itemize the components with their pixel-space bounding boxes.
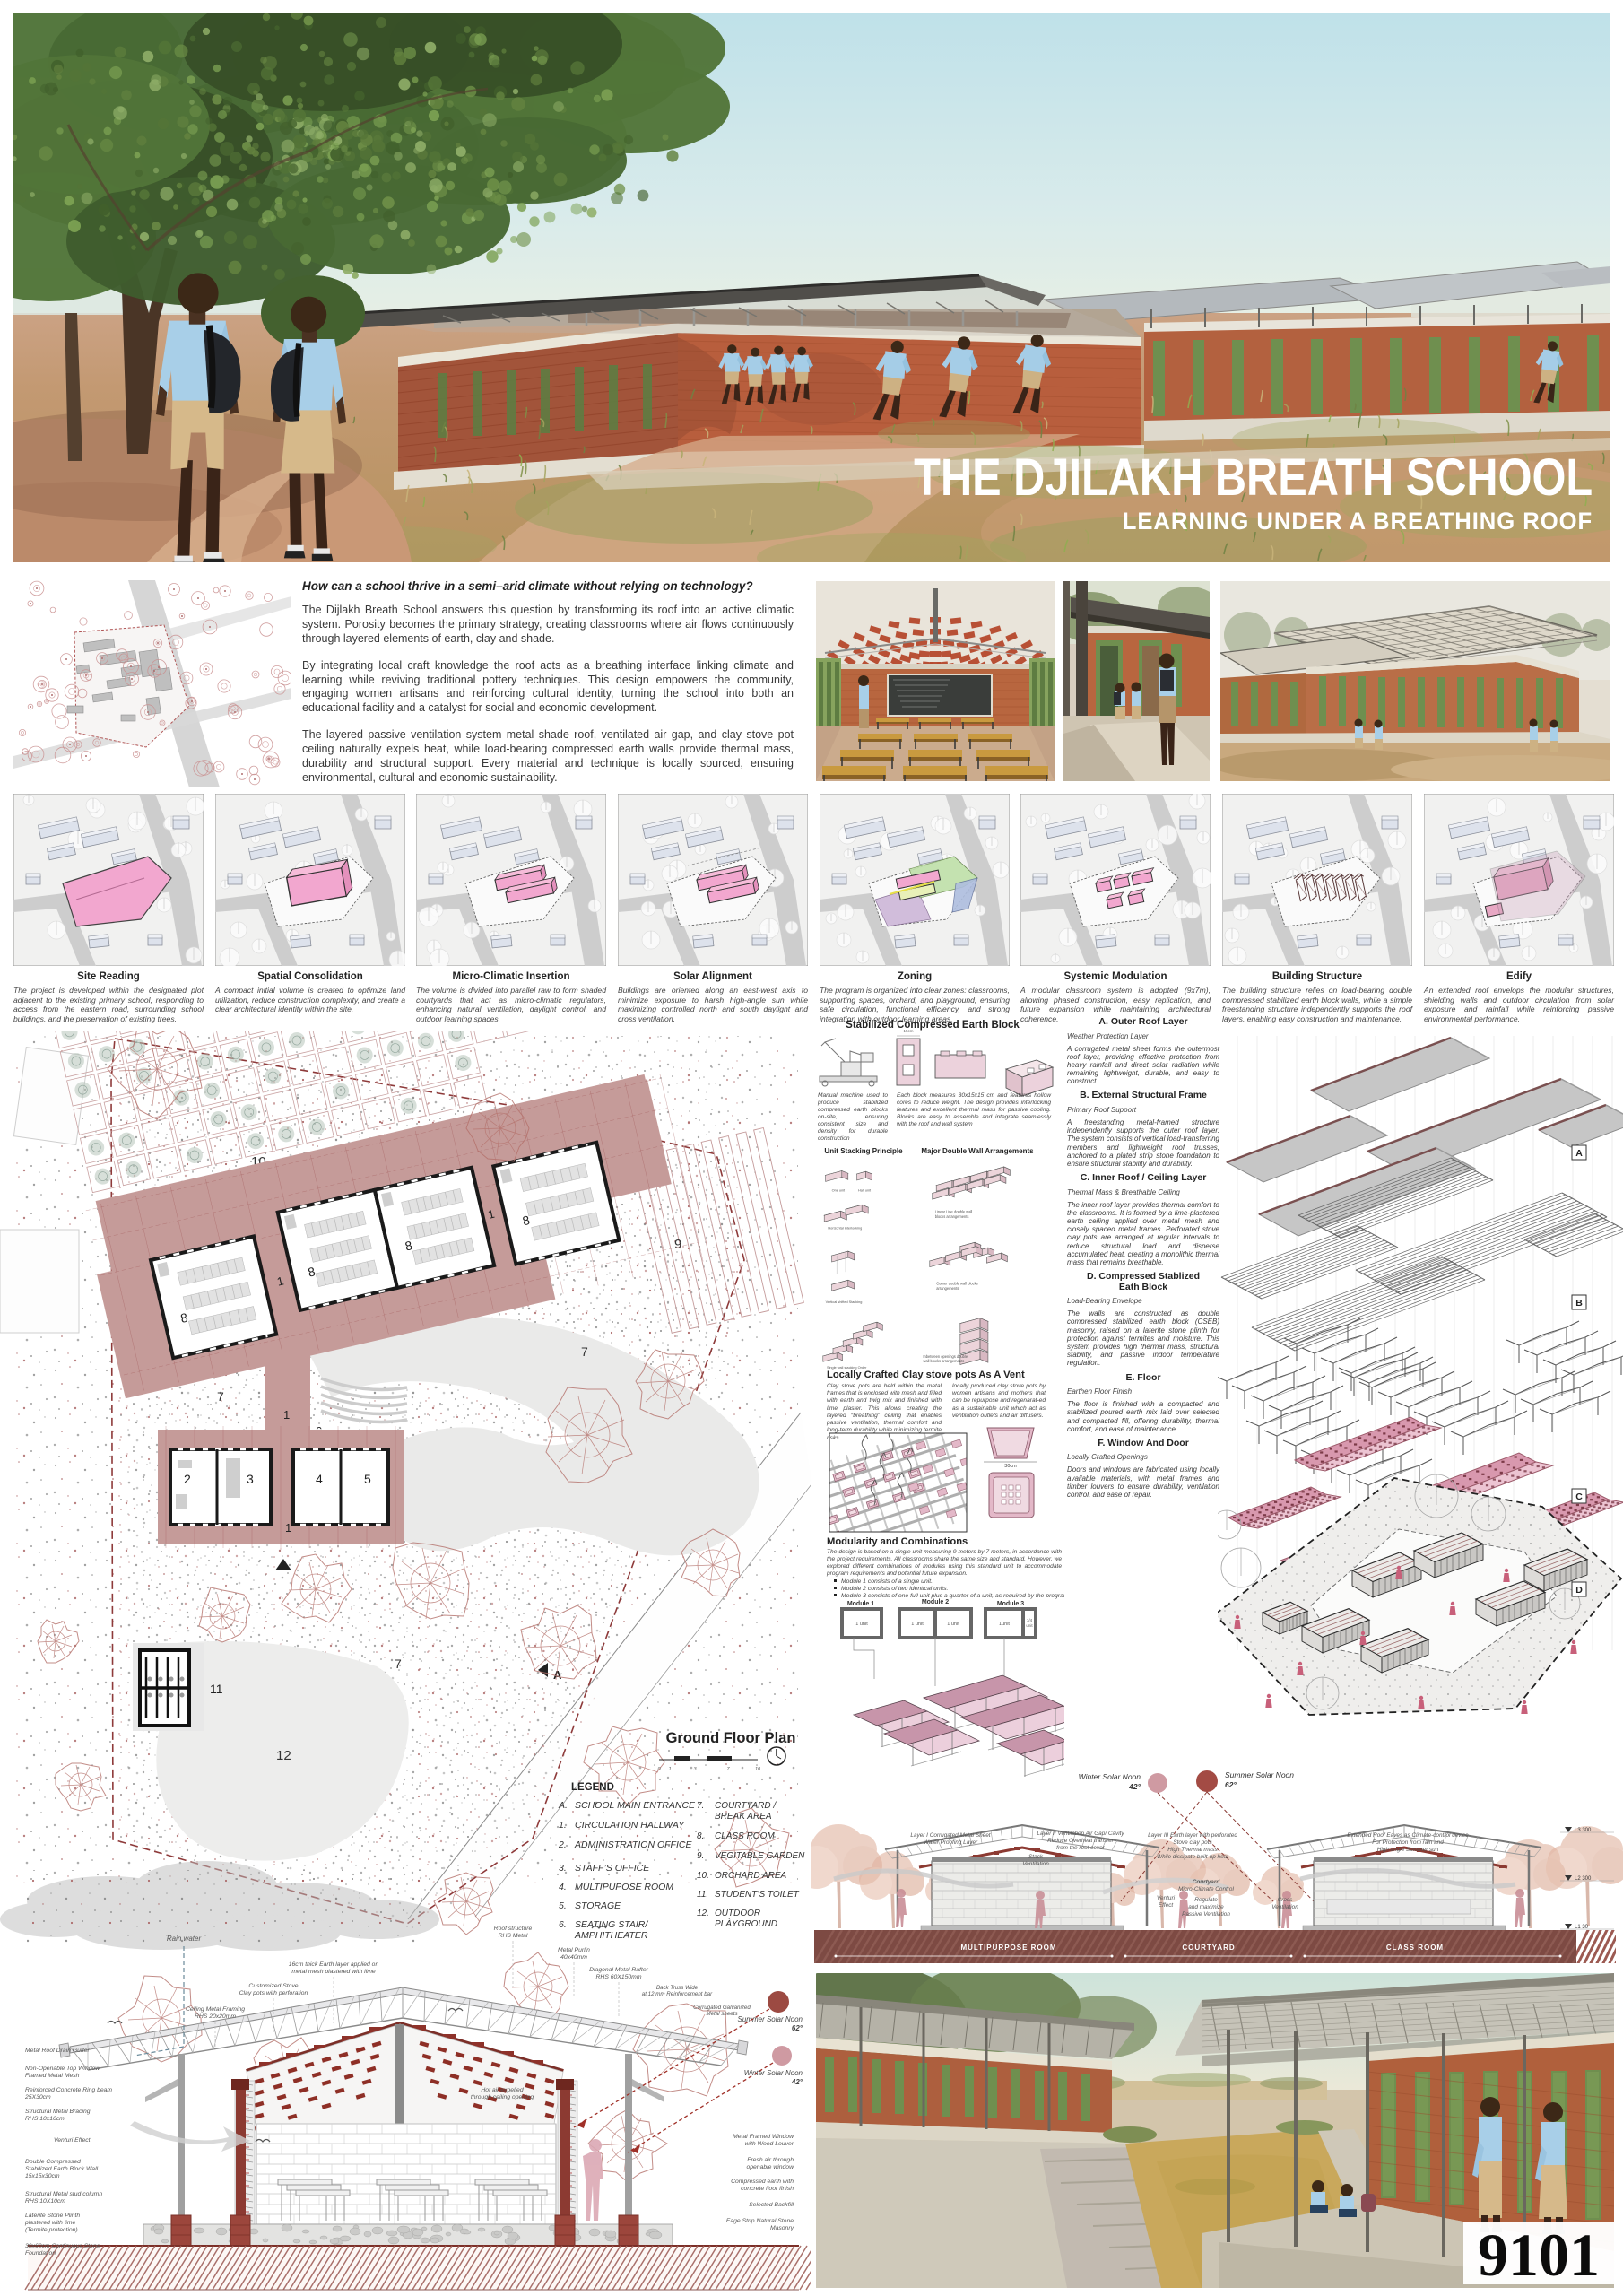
svg-text:5.: 5. xyxy=(559,1900,567,1911)
svg-text:16cm thick Earth layer applied: 16cm thick Earth layer applied on xyxy=(289,1961,379,1968)
svg-text:Regulate: Regulate xyxy=(1194,1897,1218,1903)
svg-text:Ventilation: Ventilation xyxy=(1271,1904,1298,1910)
svg-text:Clay pots with perforation: Clay pots with perforation xyxy=(239,1990,308,1996)
svg-text:High Thermal mass: High Thermal mass xyxy=(1167,1847,1218,1853)
svg-text:Layer II Ventilation Air Gap/: Layer II Ventilation Air Gap/ Cavity xyxy=(1037,1831,1124,1837)
svg-text:BREAK AREA: BREAK AREA xyxy=(715,1812,772,1822)
svg-text:RHS 10X10cm: RHS 10X10cm xyxy=(25,2198,65,2205)
svg-text:Rain water: Rain water xyxy=(167,1935,202,1943)
svg-text:Water Proofing Layer: Water Proofing Layer xyxy=(924,1839,978,1846)
svg-text:ADMINISTRATION OFFICE: ADMINISTRATION OFFICE xyxy=(574,1839,692,1850)
svg-text:Extended Roof Eaves as Climat: Extended Roof Eaves as Climate-control d… xyxy=(1347,1832,1469,1839)
svg-text:10.: 10. xyxy=(697,1871,709,1881)
svg-text:30x60cm Continuous Stone: 30x60cm Continuous Stone xyxy=(25,2243,100,2249)
svg-text:CLASS ROOM: CLASS ROOM xyxy=(1386,1944,1444,1952)
svg-text:Courtyard: Courtyard xyxy=(1193,1879,1221,1885)
svg-text:11.: 11. xyxy=(697,1890,708,1900)
svg-text:PLÀYGROUND: PLÀYGROUND xyxy=(715,1918,777,1929)
svg-text:7: 7 xyxy=(395,1657,402,1671)
svg-text:Laterite Stone Plinth: Laterite Stone Plinth xyxy=(25,2213,80,2219)
svg-text:1 unit: 1 unit xyxy=(947,1622,959,1627)
svg-text:(Termite protection): (Termite protection) xyxy=(25,2227,78,2233)
svg-text:Layer III Earth layer with per: Layer III Earth layer with perforated xyxy=(1148,1832,1237,1839)
svg-text:arrangements: arrangements xyxy=(936,1286,959,1291)
svg-text:OUTDOOR: OUTDOOR xyxy=(715,1909,760,1918)
svg-text:4: 4 xyxy=(316,1472,323,1486)
svg-text:Eage Strip Natural Stone: Eage Strip Natural Stone xyxy=(726,2218,794,2224)
svg-text:STUDENT’S TOILET: STUDENT’S TOILET xyxy=(715,1890,800,1900)
svg-text:Cross: Cross xyxy=(1278,1897,1293,1903)
svg-text:Metal Roof Drain Gutter: Metal Roof Drain Gutter xyxy=(25,2048,91,2054)
svg-text:While dissipate built-up heat: While dissipate built-up heat xyxy=(1157,1854,1228,1860)
svg-text:Stove clay pots: Stove clay pots xyxy=(1173,1839,1212,1846)
svg-text:1: 1 xyxy=(283,1408,290,1422)
svg-text:RHS 60X150mm: RHS 60X150mm xyxy=(596,1974,642,1980)
svg-text:and maximize: and maximize xyxy=(1188,1904,1224,1910)
svg-text:Reinforced Concrete Ring beam: Reinforced Concrete Ring beam xyxy=(25,2087,112,2093)
svg-text:COURTYARD /: COURTYARD / xyxy=(715,1801,777,1811)
svg-text:A: A xyxy=(1575,1148,1583,1159)
svg-text:Metal Purlin: Metal Purlin xyxy=(558,1947,590,1953)
svg-text:ORCHARD AREA: ORCHARD AREA xyxy=(715,1871,787,1881)
svg-text:Fresh air through: Fresh air through xyxy=(747,2157,794,2163)
svg-text:Reduce Overheat transfer: Reduce Overheat transfer xyxy=(1047,1838,1114,1844)
svg-text:Ground Floor Plan: Ground Floor Plan xyxy=(666,1730,796,1746)
svg-text:5: 5 xyxy=(364,1472,371,1486)
svg-text:Locally Crafted Clay stove pot: Locally Crafted Clay stove pots As A Ven… xyxy=(827,1370,1025,1380)
svg-text:1: 1 xyxy=(285,1521,291,1535)
svg-text:Stabilized Compressed Earth Bl: Stabilized Compressed Earth Block xyxy=(846,1020,1020,1031)
svg-text:from the roof cover: from the roof cover xyxy=(1056,1845,1106,1851)
svg-text:4.: 4. xyxy=(559,1882,567,1892)
svg-text:12: 12 xyxy=(276,1748,291,1763)
svg-text:Ceiling Metal Framing: Ceiling Metal Framing xyxy=(186,2006,245,2013)
svg-text:9.: 9. xyxy=(697,1851,704,1861)
svg-text:RHS 20x20mm: RHS 20x20mm xyxy=(195,2013,236,2020)
svg-text:VEGITABLE GARDEN: VEGITABLE GARDEN xyxy=(715,1851,805,1861)
svg-text:Module 3: Module 3 xyxy=(997,1601,1024,1607)
svg-text:Winter Solar Noon: Winter Solar Noon xyxy=(744,2069,803,2077)
svg-text:Foundation: Foundation xyxy=(25,2250,56,2257)
svg-text:42°: 42° xyxy=(791,2078,803,2086)
svg-text:blocks arrangements: blocks arrangements xyxy=(935,1214,969,1219)
svg-text:Metal sheets: Metal sheets xyxy=(706,2011,737,2017)
svg-text:Ventilation: Ventilation xyxy=(1022,1861,1049,1867)
svg-text:1 unit: 1 unit xyxy=(911,1622,924,1627)
svg-text:Venturi Effect: Venturi Effect xyxy=(54,2137,91,2144)
svg-text:15cm: 15cm xyxy=(903,1029,913,1033)
svg-text:at 12 mm Reinforcement bar: at 12 mm Reinforcement bar xyxy=(642,1991,713,1997)
svg-text:2.: 2. xyxy=(558,1839,567,1850)
svg-text:STORAGE: STORAGE xyxy=(575,1900,621,1911)
svg-text:Unit Stacking Principle: Unit Stacking Principle xyxy=(824,1147,903,1155)
svg-text:8.: 8. xyxy=(697,1831,704,1841)
svg-text:Layer I Corrugated Metal Sheet: Layer I Corrugated Metal Sheet xyxy=(910,1832,990,1839)
svg-text:Module 1: Module 1 xyxy=(847,1601,874,1607)
svg-text:Winter Solar Noon: Winter Solar Noon xyxy=(1079,1772,1141,1781)
svg-text:Venturi: Venturi xyxy=(1157,1895,1176,1901)
svg-text:COURTYARD: COURTYARD xyxy=(1182,1944,1235,1952)
svg-text:AMPHITHEATER: AMPHITHEATER xyxy=(574,1930,648,1941)
svg-text:B: B xyxy=(1575,1298,1583,1309)
svg-text:Micro-Climate Control: Micro-Climate Control xyxy=(1178,1886,1234,1892)
svg-text:Diagonal Metal Rafter: Diagonal Metal Rafter xyxy=(589,1967,648,1973)
svg-text:42°: 42° xyxy=(1128,1782,1141,1791)
svg-text:MULTIPURPOSE ROOM: MULTIPURPOSE ROOM xyxy=(960,1944,1056,1952)
svg-text:Structural Metal Bracing: Structural Metal Bracing xyxy=(25,2109,91,2115)
svg-text:1: 1 xyxy=(668,1767,671,1772)
svg-text:Inbetween openings double: Inbetween openings double xyxy=(923,1354,968,1359)
svg-text:wall blocks arrangements: wall blocks arrangements xyxy=(923,1359,964,1363)
svg-text:MULTIPUPOSE ROOM: MULTIPUPOSE ROOM xyxy=(575,1882,673,1892)
svg-text:9: 9 xyxy=(674,1237,681,1252)
svg-text:62°: 62° xyxy=(792,2024,803,2032)
svg-text:Double Compressed: Double Compressed xyxy=(25,2159,81,2165)
svg-text:Vertical shifted Stacking: Vertical shifted Stacking xyxy=(826,1300,863,1304)
svg-text:7: 7 xyxy=(217,1389,224,1404)
svg-text:Back Truss Wide: Back Truss Wide xyxy=(656,1985,699,1991)
svg-text:LEGEND: LEGEND xyxy=(571,1782,614,1793)
svg-text:1 unit: 1 unit xyxy=(855,1622,868,1627)
svg-text:Compressed earth with: Compressed earth with xyxy=(731,2179,794,2185)
svg-text:Roof structure: Roof structure xyxy=(494,1926,533,1932)
svg-text:Non-Openable Top Window: Non-Openable Top Window xyxy=(25,2066,100,2072)
svg-text:Stack: Stack xyxy=(1028,1854,1044,1860)
svg-text:10: 10 xyxy=(755,1767,761,1772)
svg-text:with Wood Louver: with Wood Louver xyxy=(745,2141,794,2147)
svg-text:1unit: 1unit xyxy=(999,1622,1010,1627)
svg-text:40x40mm: 40x40mm xyxy=(560,1954,587,1961)
svg-text:Major Double Wall Arrangements: Major Double Wall Arrangements xyxy=(921,1147,1034,1155)
svg-text:SEATING STAIR/: SEATING STAIR/ xyxy=(575,1919,648,1930)
svg-text:STAFF’S OFFICE: STAFF’S OFFICE xyxy=(575,1863,650,1874)
svg-text:Masonry: Masonry xyxy=(770,2225,794,2231)
svg-text:9101: 9101 xyxy=(1478,2221,1600,2288)
svg-text:Horizontal interlocking: Horizontal interlocking xyxy=(828,1227,862,1231)
svg-text:Summer Solar Noon: Summer Solar Noon xyxy=(1225,1770,1294,1779)
svg-text:C: C xyxy=(1575,1492,1583,1502)
svg-text:RHS 10x10cm: RHS 10x10cm xyxy=(25,2116,65,2122)
svg-text:Passive Ventilation: Passive Ventilation xyxy=(1182,1911,1230,1918)
svg-text:metal mesh plastered with lime: metal mesh plastered with lime xyxy=(291,1969,376,1975)
svg-text:CIRCULATION HALLWAY: CIRCULATION HALLWAY xyxy=(575,1820,685,1831)
svg-text:High angle Summer sun: High angle Summer sun xyxy=(1377,1847,1439,1853)
svg-text:Hot air expelled: Hot air expelled xyxy=(481,2087,523,2093)
svg-text:6.: 6. xyxy=(559,1919,567,1930)
svg-text:CLASS ROOM: CLASS ROOM xyxy=(715,1831,775,1841)
svg-text:SCHOOL MAIN ENTRANCE: SCHOOL MAIN ENTRANCE xyxy=(575,1800,696,1811)
svg-text:Structural Metal stud column: Structural Metal stud column xyxy=(25,2191,102,2197)
svg-text:1.: 1. xyxy=(559,1820,567,1831)
svg-text:Stabilized Earth Block Wall: Stabilized Earth Block Wall xyxy=(25,2166,99,2172)
svg-text:RHS Metal: RHS Metal xyxy=(499,1933,528,1939)
svg-text:25X30cm: 25X30cm xyxy=(24,2094,51,2100)
svg-text:plastered with lime: plastered with lime xyxy=(24,2220,76,2226)
svg-text:1/4: 1/4 xyxy=(1027,1618,1033,1622)
svg-text:Framed Metal Mesh: Framed Metal Mesh xyxy=(25,2073,80,2079)
svg-text:through ceiling opening: through ceiling opening xyxy=(471,2094,534,2100)
svg-text:Metal Framed Window: Metal Framed Window xyxy=(733,2134,794,2140)
svg-text:Module 2 consists of two ident: Module 2 consists of two identical units… xyxy=(841,1586,948,1592)
svg-text:62°: 62° xyxy=(1225,1780,1237,1789)
svg-text:Module 1 consists of a single: Module 1 consists of a single unit. xyxy=(841,1578,933,1585)
svg-text:7: 7 xyxy=(581,1344,588,1359)
svg-text:12.: 12. xyxy=(697,1909,709,1918)
svg-text:Customized Stove: Customized Stove xyxy=(248,1983,298,1989)
svg-text:concrete floor finish: concrete floor finish xyxy=(741,2186,794,2192)
svg-text:Corner double wall blocks: Corner double wall blocks xyxy=(936,1282,978,1286)
svg-text:One unit: One unit xyxy=(832,1189,846,1193)
svg-text:3: 3 xyxy=(247,1472,254,1486)
svg-text:15x15x30cm: 15x15x30cm xyxy=(25,2173,60,2179)
svg-text:Effect: Effect xyxy=(1159,1902,1174,1909)
svg-text:11: 11 xyxy=(210,1682,223,1696)
svg-text:unit: unit xyxy=(1026,1623,1033,1628)
svg-text:A.: A. xyxy=(558,1800,568,1811)
svg-text:Linear Line double wall: Linear Line double wall xyxy=(935,1210,973,1214)
svg-text:D: D xyxy=(1575,1585,1583,1596)
svg-text:30cm: 30cm xyxy=(1004,1464,1017,1469)
svg-text:Selected Backfill: Selected Backfill xyxy=(749,2202,794,2208)
svg-text:Modularity and Combinations: Modularity and Combinations xyxy=(827,1536,968,1547)
svg-text:7.: 7. xyxy=(697,1801,704,1811)
svg-text:For Protection from rain and: For Protection from rain and xyxy=(1372,1839,1444,1846)
svg-text:2: 2 xyxy=(184,1472,191,1486)
svg-text:3.: 3. xyxy=(559,1863,567,1874)
svg-text:openable window: openable window xyxy=(746,2164,794,2170)
svg-text:Module 3 consists of one full: Module 3 consists of one full unit plus … xyxy=(841,1593,1064,1599)
svg-text:Half unit: Half unit xyxy=(858,1189,872,1193)
svg-text:Module 2: Module 2 xyxy=(922,1599,949,1605)
svg-text:Corrugated Galvanized: Corrugated Galvanized xyxy=(693,2005,751,2011)
